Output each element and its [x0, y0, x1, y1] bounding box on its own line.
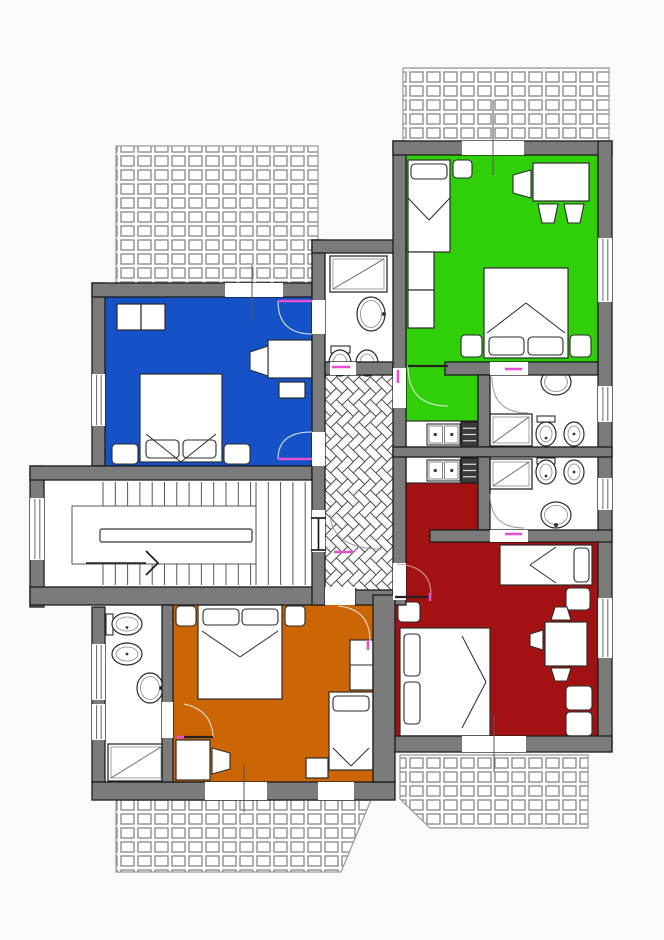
wardrobe	[408, 252, 434, 290]
window-opening	[92, 704, 105, 740]
wall	[30, 466, 312, 480]
chair	[538, 204, 558, 223]
wall	[30, 587, 325, 605]
chair	[551, 607, 571, 620]
window-opening	[92, 644, 105, 700]
drain	[434, 433, 437, 436]
window-opening	[598, 478, 612, 510]
window-opening	[30, 498, 44, 560]
desk-return	[279, 382, 305, 398]
side-table	[112, 444, 138, 464]
wall	[393, 447, 612, 457]
pillow	[404, 634, 420, 676]
nightstand	[117, 304, 141, 330]
nightstand	[285, 606, 305, 626]
bidet-drain	[573, 433, 576, 436]
wall-opening	[312, 432, 325, 466]
drain	[434, 469, 437, 472]
drain	[450, 433, 453, 436]
bidet	[564, 460, 584, 484]
floor-plan-svg	[0, 0, 664, 940]
pillow	[183, 440, 216, 458]
toilet-drain	[545, 475, 548, 478]
side-table	[570, 335, 591, 357]
window-opening	[92, 374, 105, 426]
floor-plan	[0, 0, 664, 940]
stove	[461, 422, 478, 447]
side-table	[461, 335, 482, 357]
toilet-tank	[537, 416, 555, 422]
stair-handrail	[100, 529, 252, 542]
side-table	[566, 588, 590, 610]
drain	[450, 469, 453, 472]
window-opening	[598, 238, 612, 302]
window-opening	[598, 386, 612, 422]
chair	[551, 668, 571, 681]
side-table	[224, 444, 250, 464]
wall	[598, 141, 612, 750]
wall	[478, 375, 490, 447]
sink	[541, 502, 571, 528]
bidet	[112, 643, 142, 665]
table	[533, 163, 589, 201]
wall-opening	[325, 587, 355, 605]
window	[92, 704, 105, 740]
wall	[162, 605, 173, 782]
toilet	[106, 613, 142, 635]
window	[598, 478, 612, 510]
wall-opening	[162, 702, 173, 738]
window	[92, 644, 105, 700]
pillow	[411, 164, 447, 179]
wall-opening	[205, 782, 267, 800]
wardrobe	[408, 290, 434, 328]
desk	[268, 340, 312, 378]
window	[598, 386, 612, 422]
window	[30, 498, 44, 560]
wall	[478, 457, 490, 530]
wall-opening	[318, 782, 354, 800]
shower	[330, 256, 387, 292]
bench	[566, 712, 592, 736]
chair	[530, 630, 543, 650]
bench	[566, 686, 592, 710]
bidet	[564, 422, 584, 446]
sink-bowl	[357, 297, 385, 331]
chair	[513, 170, 531, 198]
stove	[461, 458, 478, 483]
shower	[490, 459, 532, 489]
table	[545, 622, 587, 666]
sink	[357, 297, 386, 331]
nightstand	[176, 606, 196, 626]
faucet	[554, 523, 558, 527]
nightstand	[453, 160, 472, 178]
nightstand	[141, 304, 165, 330]
wall	[373, 595, 395, 782]
window	[92, 374, 105, 426]
kitchen-sink	[427, 424, 460, 445]
bidet-drain	[126, 653, 129, 656]
pillow	[404, 682, 420, 724]
pillow	[333, 696, 369, 711]
pillow	[242, 609, 278, 625]
shower	[490, 414, 532, 446]
wall-opening	[225, 283, 283, 297]
sink	[137, 673, 163, 703]
pillow	[528, 337, 563, 355]
wall	[312, 240, 406, 253]
toilet	[536, 458, 556, 484]
pillow	[489, 337, 524, 355]
shower	[108, 744, 164, 781]
pillow	[203, 609, 239, 625]
wall-opening	[312, 300, 325, 334]
pillow	[146, 440, 179, 458]
stool	[306, 758, 328, 778]
toilet-drain	[126, 626, 129, 629]
desk	[176, 740, 210, 780]
window	[598, 238, 612, 302]
wall-opening	[393, 563, 406, 600]
kitchen-sink	[427, 460, 460, 481]
window-opening	[598, 598, 612, 658]
chair	[212, 748, 230, 774]
pillow	[574, 548, 589, 582]
wall-opening	[330, 362, 356, 375]
faucet	[382, 312, 386, 316]
wall-opening	[490, 530, 528, 542]
chair	[564, 204, 584, 223]
toilet	[536, 416, 556, 446]
bidet-drain	[573, 471, 576, 474]
wall-opening	[393, 368, 406, 408]
toilet-drain	[545, 437, 548, 440]
toilet-bowl	[112, 613, 142, 635]
window	[598, 598, 612, 658]
terrace-top-left	[116, 146, 318, 286]
